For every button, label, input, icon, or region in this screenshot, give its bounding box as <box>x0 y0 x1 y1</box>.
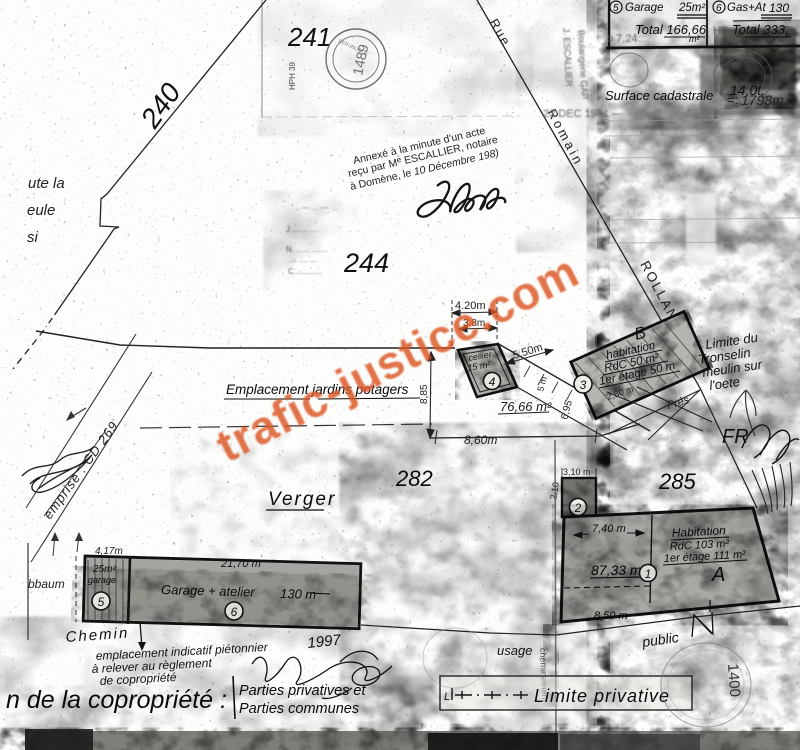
svg-text:Parties privatives et: Parties privatives et <box>239 683 366 699</box>
svg-text:21,70 m: 21,70 m <box>220 558 261 570</box>
svg-text:130 m: 130 m <box>280 586 317 602</box>
svg-text:usage: usage <box>497 643 532 658</box>
svg-text:241: 241 <box>287 22 331 52</box>
svg-text:3,10 m: 3,10 m <box>563 467 591 477</box>
svg-text:A: A <box>711 564 725 586</box>
svg-text:Total 333,: Total 333, <box>732 22 789 37</box>
svg-text:Garage + atelier: Garage + atelier <box>161 582 256 599</box>
svg-text:C.............: C............. <box>288 267 323 276</box>
svg-text:HPH 39: HPH 39 <box>288 61 297 90</box>
svg-text:4,17m: 4,17m <box>95 546 123 557</box>
svg-text:4: 4 <box>489 375 496 389</box>
svg-text:8,85: 8,85 <box>419 384 430 404</box>
svg-text:Verger: Verger <box>268 489 336 510</box>
svg-text:1798m: 1798m <box>741 92 784 108</box>
svg-text:si: si <box>27 229 39 246</box>
svg-text:285: 285 <box>658 469 696 494</box>
svg-text:FR: FR <box>722 426 749 448</box>
svg-text:b 7,24:...: b 7,24:... <box>607 33 650 45</box>
svg-text:J ....... ....: J ....... .... <box>286 225 319 234</box>
svg-text:Surface cadastrale: Surface cadastrale <box>605 88 713 103</box>
svg-text:7,40 m: 7,40 m <box>592 523 626 535</box>
svg-text:5: 5 <box>98 595 105 609</box>
svg-text:2: 2 <box>574 501 582 515</box>
svg-text:1997: 1997 <box>307 632 343 652</box>
svg-text:22 DEC 1981 —: 22 DEC 1981 — <box>543 108 623 120</box>
svg-text:6: 6 <box>231 605 238 619</box>
svg-text:Parties communes: Parties communes <box>239 701 359 717</box>
svg-text:5: 5 <box>613 3 619 14</box>
svg-text:130: 130 <box>769 1 789 15</box>
svg-text:Gas+At: Gas+At <box>727 2 766 14</box>
svg-text:bbaum: bbaum <box>28 577 65 591</box>
svg-text:244: 244 <box>343 248 389 278</box>
svg-text:Limite privative: Limite privative <box>534 686 670 706</box>
svg-text:1: 1 <box>645 567 652 581</box>
svg-text:6: 6 <box>716 3 722 14</box>
svg-text:=:: =: <box>727 92 738 107</box>
svg-text:.. — ... — ...: .. — ... — ... <box>295 203 338 212</box>
svg-text:25m²: 25m² <box>92 564 116 575</box>
svg-text:Garage: Garage <box>625 2 663 14</box>
svg-text:... .:.. ...: ... .:.. ... <box>290 255 317 264</box>
svg-text:m²: m² <box>689 34 700 44</box>
svg-text:n de la copropriété :: n de la copropriété : <box>6 686 227 714</box>
svg-text:3: 3 <box>580 378 587 392</box>
svg-text:L: L <box>444 691 450 703</box>
svg-text:8,60m: 8,60m <box>464 433 497 447</box>
svg-text:garage: garage <box>88 575 116 585</box>
svg-text:8,50 m: 8,50 m <box>594 610 628 622</box>
svg-text:1400: 1400 <box>724 663 743 697</box>
svg-text:HF: HF <box>713 25 728 37</box>
svg-text:N. ...... ..:....: N. ...... ..:.... <box>286 245 327 254</box>
svg-text:25m²: 25m² <box>678 2 706 14</box>
svg-text:eule: eule <box>27 202 55 219</box>
svg-text:282: 282 <box>395 466 433 491</box>
svg-text:ute la: ute la <box>28 175 65 192</box>
